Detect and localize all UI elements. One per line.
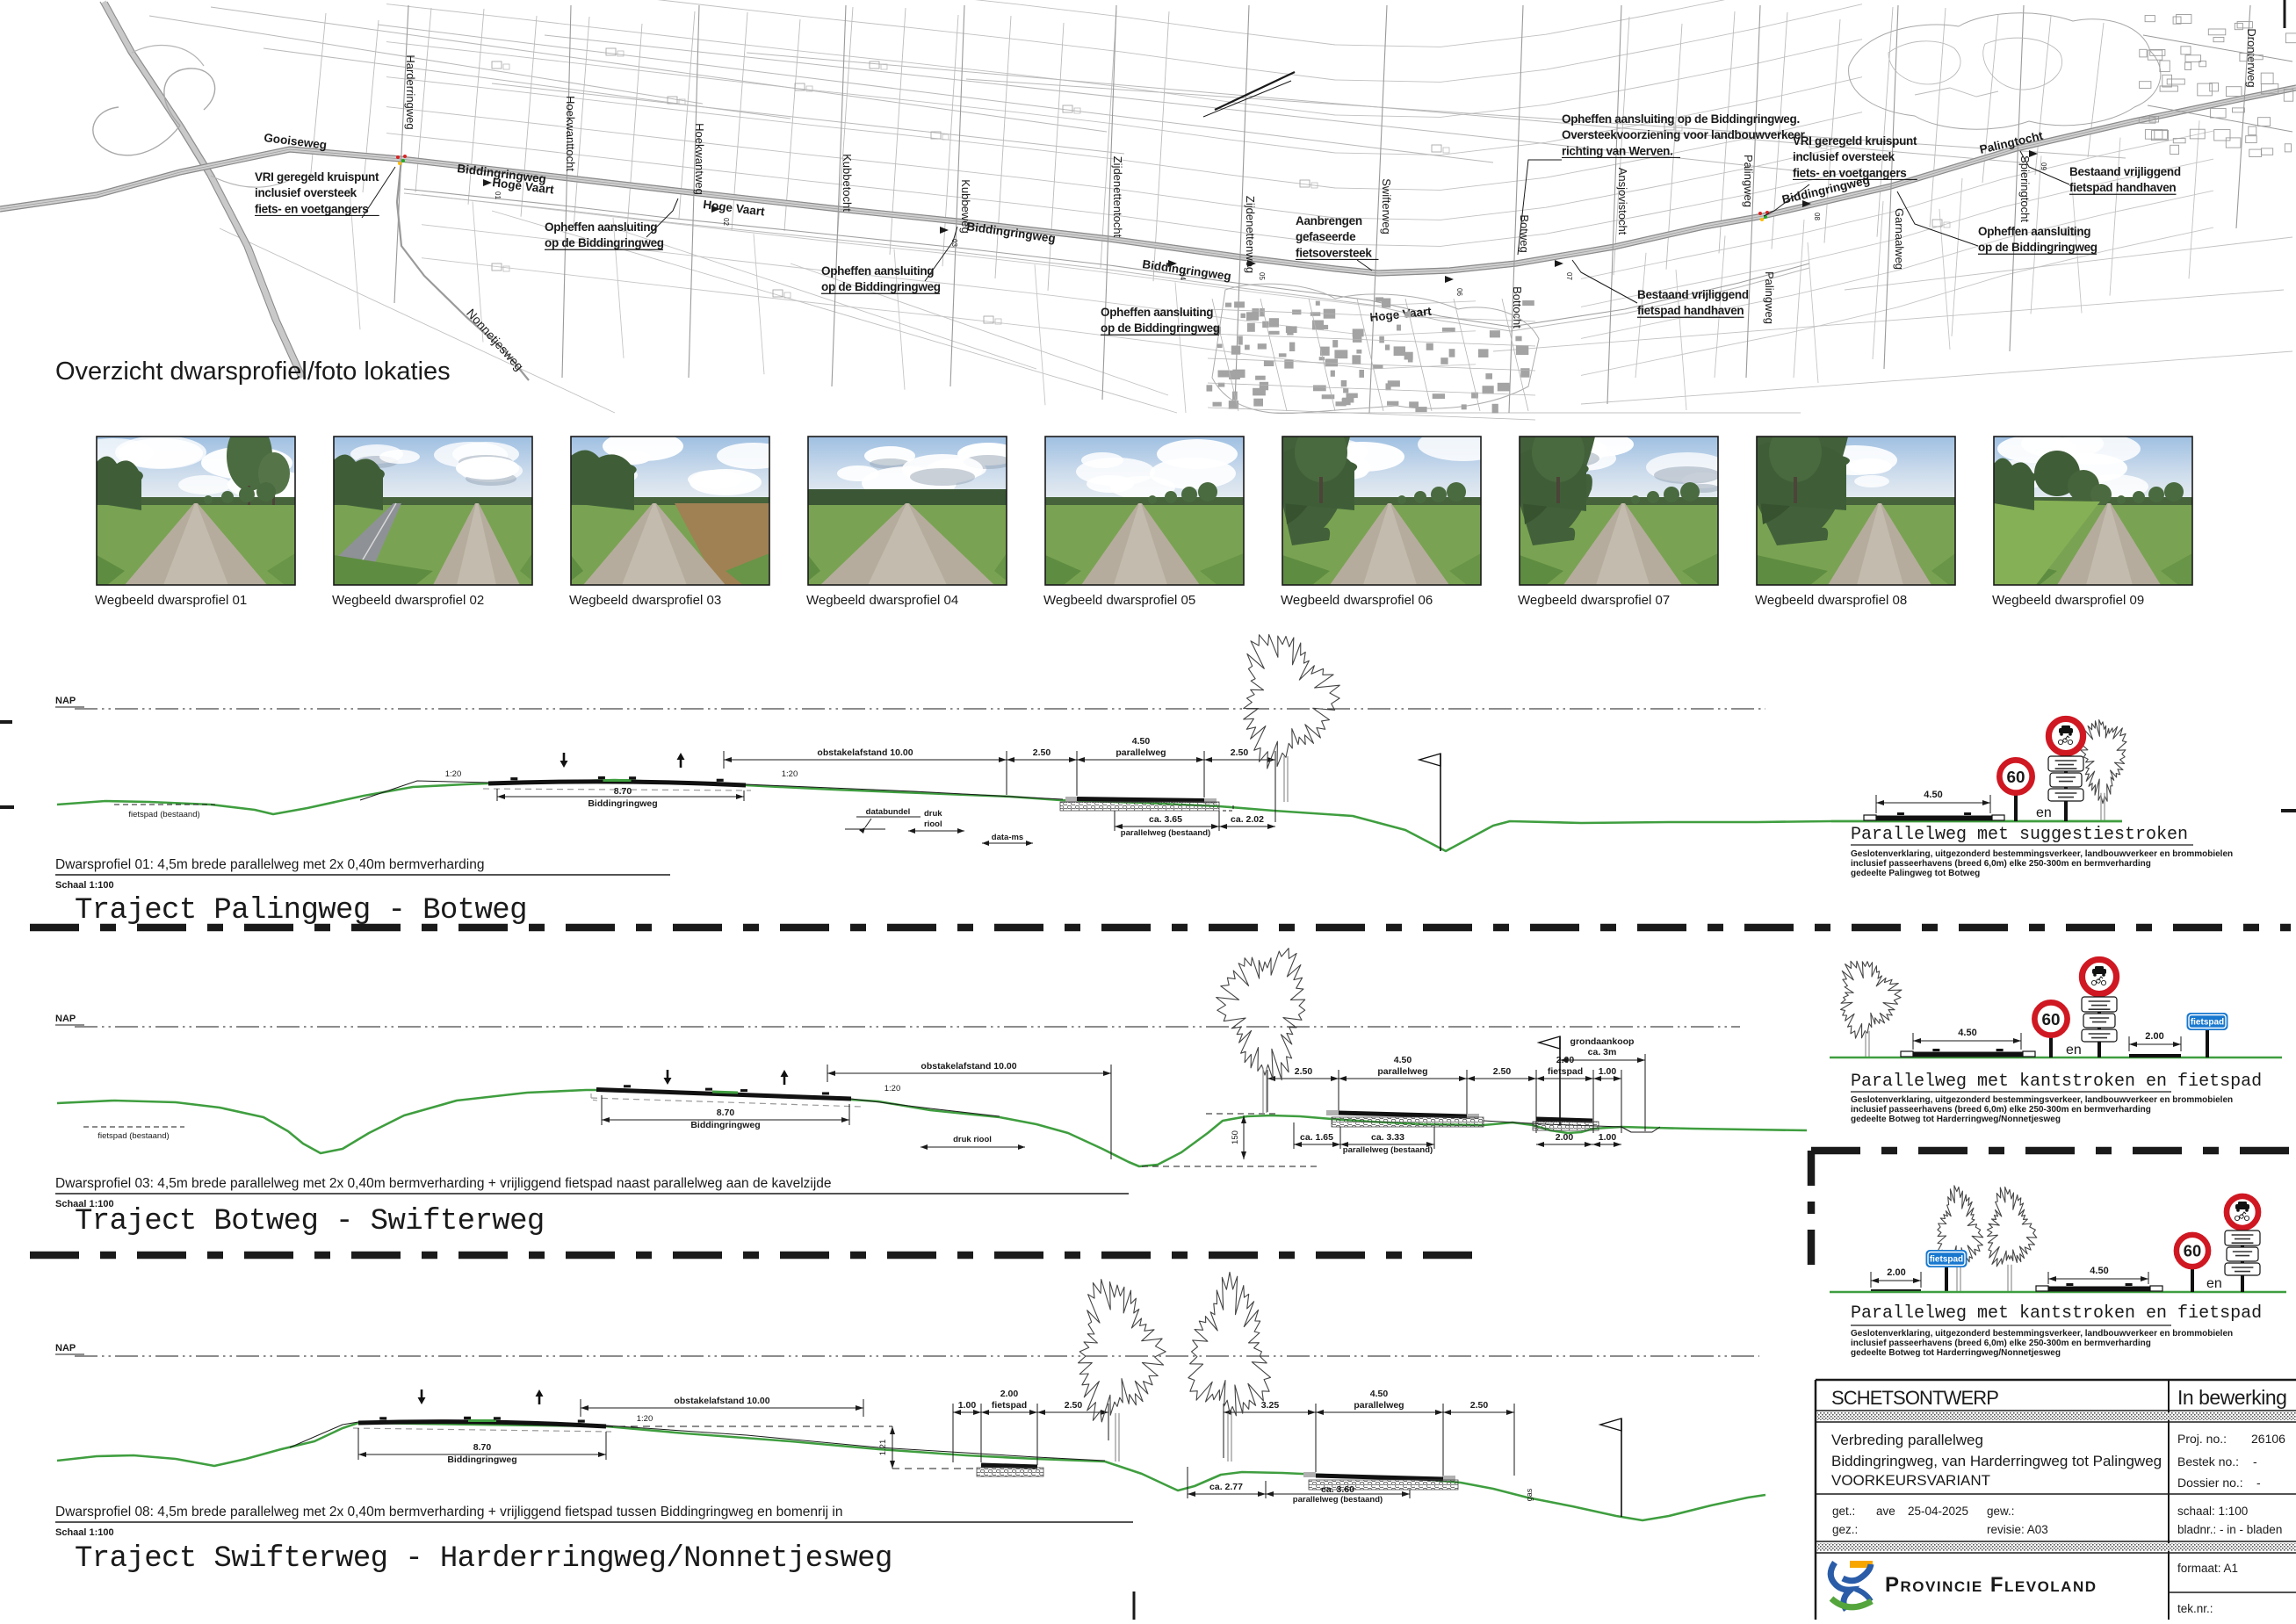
svg-text:Schaal 1:100: Schaal 1:100: [55, 1527, 114, 1538]
svg-text:ca. 1.65: ca. 1.65: [1300, 1132, 1333, 1143]
svg-text:get.:: get.:: [1832, 1505, 1855, 1518]
svg-text:fietspad handhaven: fietspad handhaven: [2069, 181, 2176, 194]
svg-text:8.70: 8.70: [717, 1108, 735, 1118]
svg-text:06: 06: [1455, 288, 1463, 296]
svg-text:Biddingringweg: Biddingringweg: [447, 1454, 516, 1465]
svg-text:Wegbeeld dwarsprofiel 07: Wegbeeld dwarsprofiel 07: [1518, 593, 1670, 608]
svg-text:4.50: 4.50: [1394, 1055, 1412, 1065]
svg-text:01: 01: [494, 191, 502, 199]
svg-text:Parallelweg met kantstroken en: Parallelweg met kantstroken en fietspad: [1851, 1303, 2262, 1324]
svg-text:Traject Palingweg - Botweg: Traject Palingweg - Botweg: [75, 894, 527, 927]
svg-text:07: 07: [1565, 272, 1573, 280]
svg-text:ca. 3m: ca. 3m: [1588, 1047, 1617, 1057]
svg-text:2.50: 2.50: [1493, 1066, 1512, 1077]
svg-text:richting van Werven.: richting van Werven.: [1562, 144, 1673, 157]
svg-text:NAP: NAP: [55, 1014, 76, 1024]
svg-text:1:20: 1:20: [782, 769, 798, 779]
svg-text:fietspad: fietspad: [1548, 1066, 1583, 1077]
svg-text:parallelweg: parallelweg: [1116, 747, 1166, 758]
svg-text:150: 150: [1231, 1130, 1240, 1144]
svg-text:en: en: [2066, 1043, 2082, 1057]
svg-text:Geslotenverklaring, uitgezonde: Geslotenverklaring, uitgezonderd bestemm…: [1851, 1329, 2233, 1339]
svg-text:VRI geregeld kruispunt: VRI geregeld kruispunt: [255, 170, 379, 184]
svg-text:Ansjovistocht: Ansjovistocht: [1616, 168, 1629, 235]
svg-text:fietspad handhaven: fietspad handhaven: [1637, 304, 1744, 317]
svg-text:04: 04: [1179, 272, 1187, 280]
svg-text:op de Biddingringweg: op de Biddingringweg: [1978, 241, 2097, 254]
svg-text:Traject Swifterweg - Harderrin: Traject Swifterweg - Harderringweg/Nonne…: [75, 1542, 892, 1576]
svg-text:Verbreding parallelweg: Verbreding parallelweg: [1831, 1432, 1983, 1448]
svg-text:2.50: 2.50: [1470, 1400, 1489, 1411]
svg-text:druk riool: druk riool: [953, 1135, 992, 1144]
svg-text:Provincie Flevoland: Provincie Flevoland: [1885, 1573, 2097, 1597]
svg-text:1.00: 1.00: [958, 1400, 977, 1411]
svg-text:SCHETSONTWERP: SCHETSONTWERP: [1831, 1387, 1998, 1409]
svg-text:druk: druk: [924, 809, 942, 819]
svg-text:Overzicht dwarsprofiel/foto lo: Overzicht dwarsprofiel/foto lokaties: [55, 357, 451, 386]
svg-text:25-04-2025: 25-04-2025: [1908, 1505, 1968, 1518]
svg-text:Wegbeeld dwarsprofiel 02: Wegbeeld dwarsprofiel 02: [332, 593, 484, 608]
svg-text:2.50: 2.50: [1231, 747, 1249, 758]
svg-text:Swifterweg: Swifterweg: [1380, 178, 1393, 235]
svg-text:gedeelte Palingweg tot Botweg: gedeelte Palingweg tot Botweg: [1851, 869, 1980, 878]
svg-text:Kubbetocht: Kubbetocht: [841, 154, 854, 212]
svg-text:08: 08: [1813, 213, 1821, 220]
svg-text:parallelweg: parallelweg: [1354, 1400, 1404, 1411]
svg-text:Dronterweg: Dronterweg: [2245, 28, 2258, 87]
svg-text:Dwarsprofiel 08: 4,5m brede pa: Dwarsprofiel 08: 4,5m brede parallelweg …: [55, 1505, 842, 1519]
svg-text:gedeelte Botweg tot Harderring: gedeelte Botweg tot Harderringweg/Nonnet…: [1851, 1348, 2061, 1358]
svg-text:op de Biddingringweg: op de Biddingringweg: [821, 280, 941, 293]
svg-text:op de Biddingringweg: op de Biddingringweg: [1101, 321, 1220, 335]
svg-text:ca. 2.77: ca. 2.77: [1209, 1482, 1243, 1492]
svg-text:tek.nr.:: tek.nr.:: [2177, 1602, 2213, 1615]
svg-text:Hoekwanttocht: Hoekwanttocht: [564, 96, 577, 171]
svg-text:Opheffen aansluiting: Opheffen aansluiting: [1101, 306, 1213, 319]
svg-text:parallelweg (bestaand): parallelweg (bestaand): [1343, 1145, 1433, 1155]
svg-text:fietspad (bestaand): fietspad (bestaand): [128, 810, 199, 819]
svg-text:databundel: databundel: [866, 807, 911, 817]
svg-text:2.50: 2.50: [1033, 747, 1051, 758]
svg-text:2.50: 2.50: [1295, 1066, 1313, 1077]
svg-text:-: -: [2256, 1476, 2261, 1490]
svg-text:In bewerking: In bewerking: [2177, 1386, 2286, 1409]
svg-text:2.00: 2.00: [2145, 1031, 2163, 1042]
svg-text:Parallelweg met kantstroken en: Parallelweg met kantstroken en fietspad: [1851, 1072, 2262, 1092]
svg-text:Palingweg: Palingweg: [1763, 271, 1776, 324]
svg-text:Dwarsprofiel 03: 4,5m brede pa: Dwarsprofiel 03: 4,5m brede parallelweg …: [55, 1176, 832, 1191]
svg-text:2.00: 2.00: [1556, 1132, 1574, 1143]
svg-text:8.70: 8.70: [473, 1442, 492, 1453]
svg-text:2.00: 2.00: [1887, 1267, 1905, 1278]
svg-text:Zijdenettentocht: Zijdenettentocht: [1111, 156, 1124, 238]
svg-text:Palingweg: Palingweg: [1742, 155, 1755, 207]
svg-text:obstakelafstand 10.00: obstakelafstand 10.00: [817, 747, 913, 758]
svg-text:Wegbeeld dwarsprofiel 06: Wegbeeld dwarsprofiel 06: [1281, 593, 1433, 608]
svg-text:revisie: A03: revisie: A03: [1987, 1523, 2048, 1536]
svg-text:3.25: 3.25: [1261, 1400, 1280, 1411]
svg-text:1.21: 1.21: [878, 1440, 888, 1456]
svg-text:60: 60: [2041, 1011, 2060, 1029]
svg-text:Wegbeeld dwarsprofiel 05: Wegbeeld dwarsprofiel 05: [1043, 593, 1195, 608]
svg-text:obstakelafstand 10.00: obstakelafstand 10.00: [674, 1396, 769, 1406]
svg-text:1:20: 1:20: [884, 1084, 901, 1093]
svg-text:schaal: 1:100: schaal: 1:100: [2177, 1505, 2248, 1518]
svg-text:05: 05: [1258, 272, 1266, 280]
svg-text:fietspad: fietspad: [2191, 1018, 2224, 1028]
svg-text:Wegbeeld dwarsprofiel 03: Wegbeeld dwarsprofiel 03: [569, 593, 721, 608]
svg-text:1:20: 1:20: [445, 769, 462, 779]
svg-text:NAP: NAP: [55, 1343, 76, 1353]
svg-text:en: en: [2206, 1276, 2222, 1291]
svg-text:Bestaand vrijliggend: Bestaand vrijliggend: [2069, 165, 2181, 178]
svg-text:Bottocht: Bottocht: [1511, 286, 1524, 328]
svg-text:26106: 26106: [2251, 1432, 2285, 1446]
svg-text:4.50: 4.50: [1958, 1028, 1976, 1038]
svg-text:Harderringweg: Harderringweg: [404, 54, 417, 129]
svg-text:2.50: 2.50: [1065, 1400, 1083, 1411]
svg-text:Opheffen aansluiting op de Bid: Opheffen aansluiting op de Biddingringwe…: [1562, 112, 1800, 126]
svg-text:Traject Botweg - Swifterweg: Traject Botweg - Swifterweg: [75, 1205, 545, 1238]
svg-text:Dossier no.:: Dossier no.:: [2177, 1476, 2243, 1490]
svg-text:4.50: 4.50: [1132, 736, 1151, 747]
svg-text:Opheffen aansluiting: Opheffen aansluiting: [545, 220, 657, 234]
svg-text:Biddingringweg: Biddingringweg: [690, 1120, 760, 1130]
svg-text:inclusief passeerhavens (breed: inclusief passeerhavens (breed 6,0m) elk…: [1851, 1339, 2151, 1348]
svg-text:Wegbeeld dwarsprofiel 09: Wegbeeld dwarsprofiel 09: [1992, 593, 2144, 608]
svg-text:Opheffen aansluiting: Opheffen aansluiting: [1978, 225, 2090, 238]
svg-text:Biddingringweg: Biddingringweg: [588, 798, 657, 809]
svg-text:fiets- en voetgangers: fiets- en voetgangers: [255, 202, 369, 215]
svg-text:2.00: 2.00: [1000, 1389, 1019, 1399]
svg-text:NAP: NAP: [55, 696, 76, 706]
svg-text:obstakelafstand 10.00: obstakelafstand 10.00: [921, 1061, 1016, 1072]
svg-text:60: 60: [2006, 769, 2025, 787]
svg-text:data-ms: data-ms: [992, 833, 1023, 842]
svg-text:parallelweg (bestaand): parallelweg (bestaand): [1293, 1495, 1383, 1505]
svg-text:parallelweg: parallelweg: [1377, 1066, 1427, 1077]
svg-text:inclusief oversteek: inclusief oversteek: [1793, 150, 1895, 163]
svg-text:-: -: [2253, 1454, 2257, 1469]
svg-text:grondaankoop: grondaankoop: [1570, 1036, 1635, 1047]
svg-text:Aanbrengen: Aanbrengen: [1296, 214, 1362, 227]
svg-text:Geslotenverklaring, uitgezonde: Geslotenverklaring, uitgezonderd bestemm…: [1851, 1095, 2233, 1105]
svg-text:4.50: 4.50: [1370, 1389, 1389, 1399]
svg-text:Biddingringweg, van Harderring: Biddingringweg, van Harderringweg tot Pa…: [1831, 1453, 2162, 1469]
svg-text:gas: gas: [1525, 1488, 1534, 1501]
svg-text:Wegbeeld dwarsprofiel 04: Wegbeeld dwarsprofiel 04: [806, 593, 958, 608]
svg-text:09: 09: [2040, 162, 2047, 170]
svg-text:8.70: 8.70: [614, 786, 632, 797]
svg-text:VRI geregeld kruispunt: VRI geregeld kruispunt: [1793, 134, 1917, 148]
svg-text:03: 03: [950, 239, 958, 247]
svg-text:gew.:: gew.:: [1987, 1505, 2015, 1518]
svg-text:fietspad: fietspad: [992, 1400, 1027, 1411]
svg-text:Oversteekvoorziening voor land: Oversteekvoorziening voor landbouwverkee…: [1562, 128, 1806, 141]
svg-text:inclusief oversteek: inclusief oversteek: [255, 186, 357, 199]
svg-text:02: 02: [722, 218, 730, 226]
svg-text:fietsoversteek: fietsoversteek: [1296, 246, 1372, 259]
svg-text:ca. 3.65: ca. 3.65: [1149, 814, 1182, 825]
svg-text:gefaseerde: gefaseerde: [1296, 230, 1356, 243]
svg-text:Geslotenverklaring, uitgezonde: Geslotenverklaring, uitgezonderd bestemm…: [1851, 849, 2233, 859]
svg-text:bladnr.: - in - bladen: bladnr.: - in - bladen: [2177, 1523, 2282, 1536]
svg-text:Bestek no.:: Bestek no.:: [2177, 1454, 2239, 1469]
svg-text:Schaal 1:100: Schaal 1:100: [55, 880, 114, 891]
svg-text:en: en: [2036, 805, 2052, 820]
svg-text:formaat: A1: formaat: A1: [2177, 1562, 2238, 1575]
svg-text:inclusief passeerhavens (breed: inclusief passeerhavens (breed 6,0m) elk…: [1851, 859, 2151, 869]
svg-text:gez.:: gez.:: [1832, 1523, 1858, 1536]
svg-text:Hoekwantweg: Hoekwantweg: [693, 123, 706, 195]
svg-text:ave: ave: [1876, 1505, 1895, 1518]
svg-text:Proj. no.:: Proj. no.:: [2177, 1432, 2227, 1446]
svg-text:ca. 3.33: ca. 3.33: [1371, 1132, 1404, 1143]
svg-text:fietspad (bestaand): fietspad (bestaand): [97, 1131, 169, 1141]
svg-text:60: 60: [2184, 1242, 2201, 1260]
svg-text:op de Biddingringweg: op de Biddingringweg: [545, 236, 664, 249]
svg-text:1.00: 1.00: [1599, 1132, 1617, 1143]
svg-text:VOORKEURSVARIANT: VOORKEURSVARIANT: [1831, 1472, 1990, 1489]
svg-text:fietspad: fietspad: [1930, 1255, 1963, 1265]
svg-text:Garnaalweg: Garnaalweg: [1893, 208, 1906, 270]
svg-text:ca. 3.60: ca. 3.60: [1321, 1484, 1354, 1495]
svg-text:ca. 2.02: ca. 2.02: [1231, 814, 1264, 825]
svg-text:gedeelte Botweg tot Harderring: gedeelte Botweg tot Harderringweg/Nonnet…: [1851, 1115, 2061, 1124]
svg-text:Bestaand vrijliggend: Bestaand vrijliggend: [1637, 288, 1749, 301]
svg-text:Parallelweg met suggestiestrok: Parallelweg met suggestiestroken: [1851, 825, 2188, 845]
svg-text:Opheffen aansluiting: Opheffen aansluiting: [821, 264, 934, 278]
svg-text:Dwarsprofiel 01: 4,5m brede pa: Dwarsprofiel 01: 4,5m brede parallelweg …: [55, 857, 485, 872]
svg-text:Spieringtocht: Spieringtocht: [2018, 155, 2032, 222]
svg-text:1:20: 1:20: [637, 1414, 653, 1424]
svg-text:inclusief passeerhavens (breed: inclusief passeerhavens (breed 6,0m) elk…: [1851, 1105, 2151, 1115]
svg-text:Wegbeeld dwarsprofiel 08: Wegbeeld dwarsprofiel 08: [1755, 593, 1907, 608]
svg-text:riool: riool: [924, 819, 942, 829]
svg-text:Wegbeeld dwarsprofiel 01: Wegbeeld dwarsprofiel 01: [95, 593, 247, 608]
svg-text:fiets- en voetgangers: fiets- en voetgangers: [1793, 166, 1907, 179]
svg-text:1.00: 1.00: [1599, 1066, 1617, 1077]
svg-text:parallelweg (bestaand): parallelweg (bestaand): [1121, 828, 1210, 838]
svg-text:4.50: 4.50: [1924, 790, 1942, 800]
svg-text:4.50: 4.50: [2090, 1266, 2108, 1276]
